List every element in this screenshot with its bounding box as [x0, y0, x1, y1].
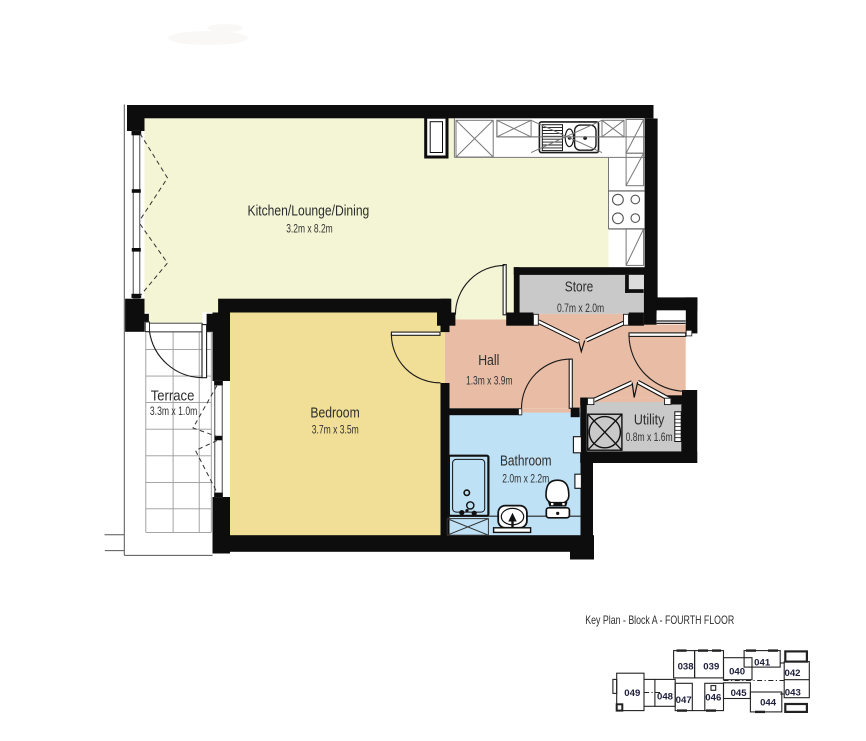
svg-text:048: 048	[657, 691, 673, 702]
svg-text:Store: Store	[565, 279, 594, 295]
svg-text:Key Plan - Block A - FOURTH FL: Key Plan - Block A - FOURTH FLOOR	[585, 613, 734, 627]
svg-text:Hall: Hall	[478, 353, 499, 369]
svg-text:Bathroom: Bathroom	[500, 453, 552, 469]
svg-text:042: 042	[785, 668, 801, 679]
svg-text:Kitchen/Lounge/Dining: Kitchen/Lounge/Dining	[248, 204, 370, 220]
svg-text:041: 041	[754, 658, 771, 669]
svg-text:040: 040	[729, 667, 745, 678]
svg-text:045: 045	[731, 688, 748, 699]
svg-text:0.8m x 1.6m: 0.8m x 1.6m	[626, 432, 673, 444]
svg-text:039: 039	[703, 662, 719, 673]
svg-text:3.3m x 1.0m: 3.3m x 1.0m	[150, 406, 197, 418]
svg-text:Utility: Utility	[634, 413, 665, 429]
svg-text:0.7m x 2.0m: 0.7m x 2.0m	[557, 303, 604, 315]
svg-text:046: 046	[705, 692, 721, 703]
svg-text:3.7m x 3.5m: 3.7m x 3.5m	[312, 425, 359, 437]
svg-text:Bedroom: Bedroom	[310, 405, 359, 421]
svg-text:049: 049	[624, 688, 640, 699]
svg-text:043: 043	[785, 687, 801, 698]
svg-text:3.2m x 8.2m: 3.2m x 8.2m	[286, 224, 333, 236]
svg-text:047: 047	[676, 695, 692, 706]
svg-text:044: 044	[760, 698, 777, 709]
svg-text:Terrace: Terrace	[151, 389, 195, 405]
svg-text:1.3m x 3.9m: 1.3m x 3.9m	[466, 376, 513, 388]
svg-text:2.0m x 2.2m: 2.0m x 2.2m	[502, 474, 549, 486]
svg-text:038: 038	[678, 662, 694, 673]
